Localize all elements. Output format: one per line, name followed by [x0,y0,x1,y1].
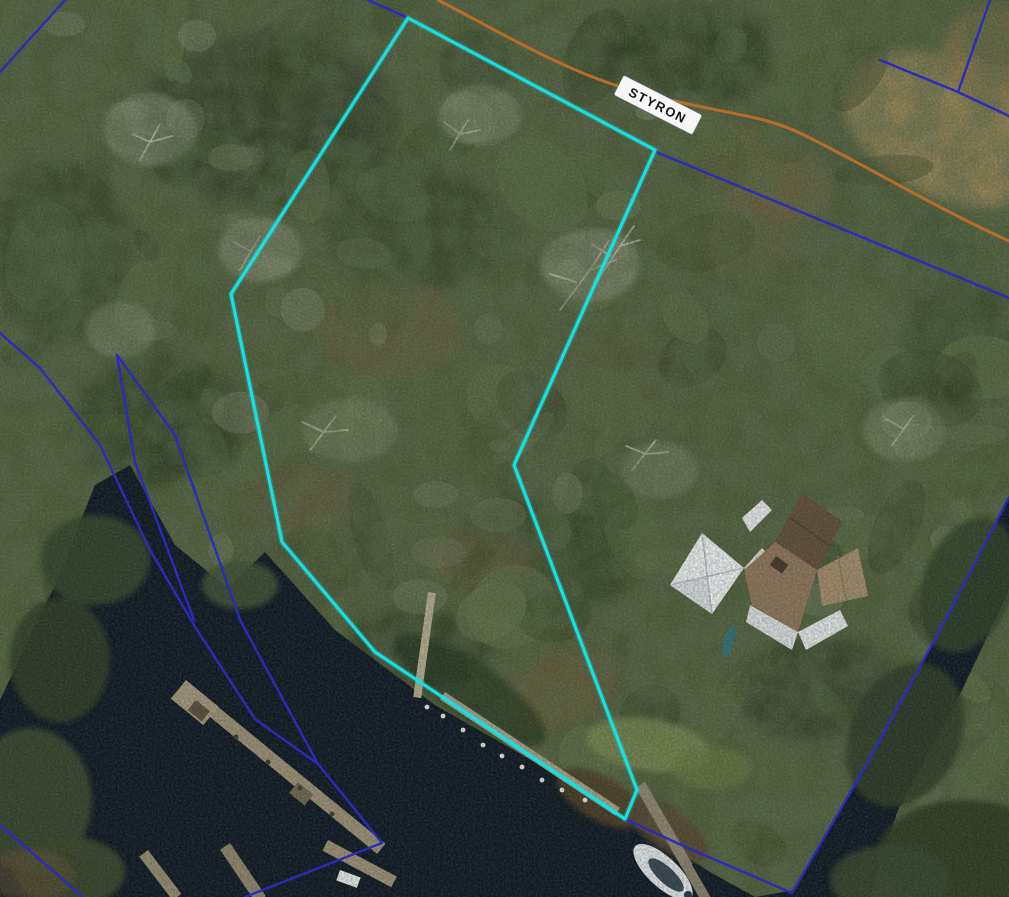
map-canvas[interactable]: STYRON [0,0,1009,897]
grain-overlay-light [0,0,1009,897]
map-viewport[interactable]: STYRON [0,0,1009,897]
